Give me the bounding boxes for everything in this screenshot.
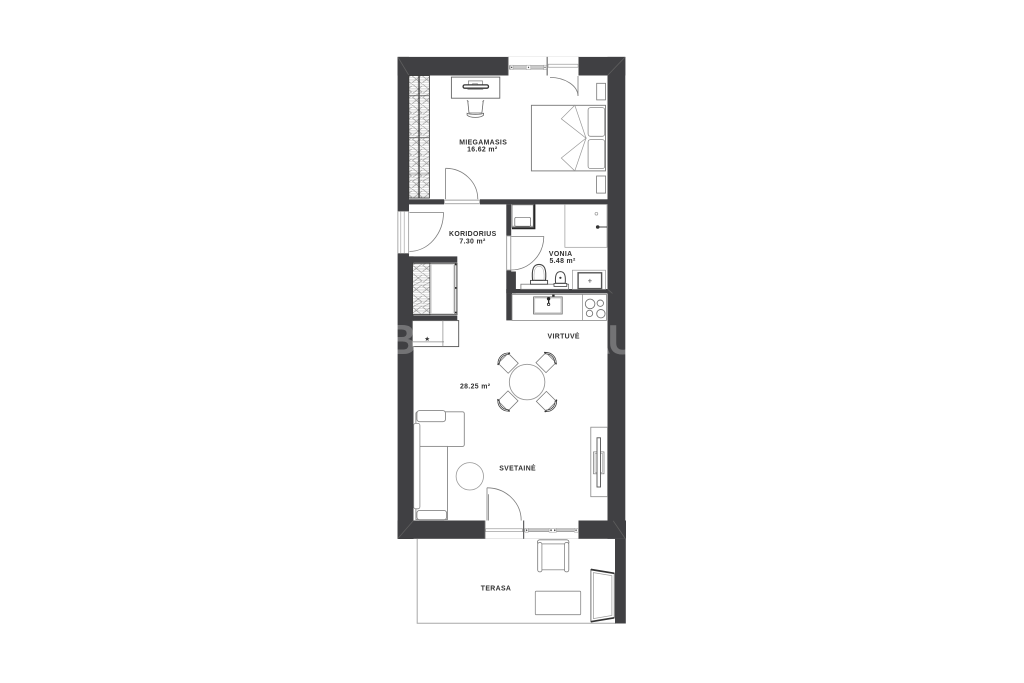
svg-text:U: U: [608, 316, 638, 363]
svg-text:VIRTUVĖ: VIRTUVĖ: [548, 332, 580, 341]
svg-text:28.25 m²: 28.25 m²: [460, 384, 491, 391]
svg-text:5.48 m²: 5.48 m²: [549, 258, 576, 265]
svg-text:KORIDORIUS: KORIDORIUS: [449, 231, 497, 238]
svg-text:16.62 m²: 16.62 m²: [467, 146, 498, 153]
svg-text:A: A: [581, 316, 611, 363]
svg-text:B: B: [386, 316, 416, 363]
svg-text:SVETAINĖ: SVETAINĖ: [499, 464, 536, 473]
svg-text:TERASA: TERASA: [481, 586, 511, 593]
svg-text:VONIA: VONIA: [549, 251, 573, 258]
svg-text:7.30 m²: 7.30 m²: [459, 239, 486, 246]
